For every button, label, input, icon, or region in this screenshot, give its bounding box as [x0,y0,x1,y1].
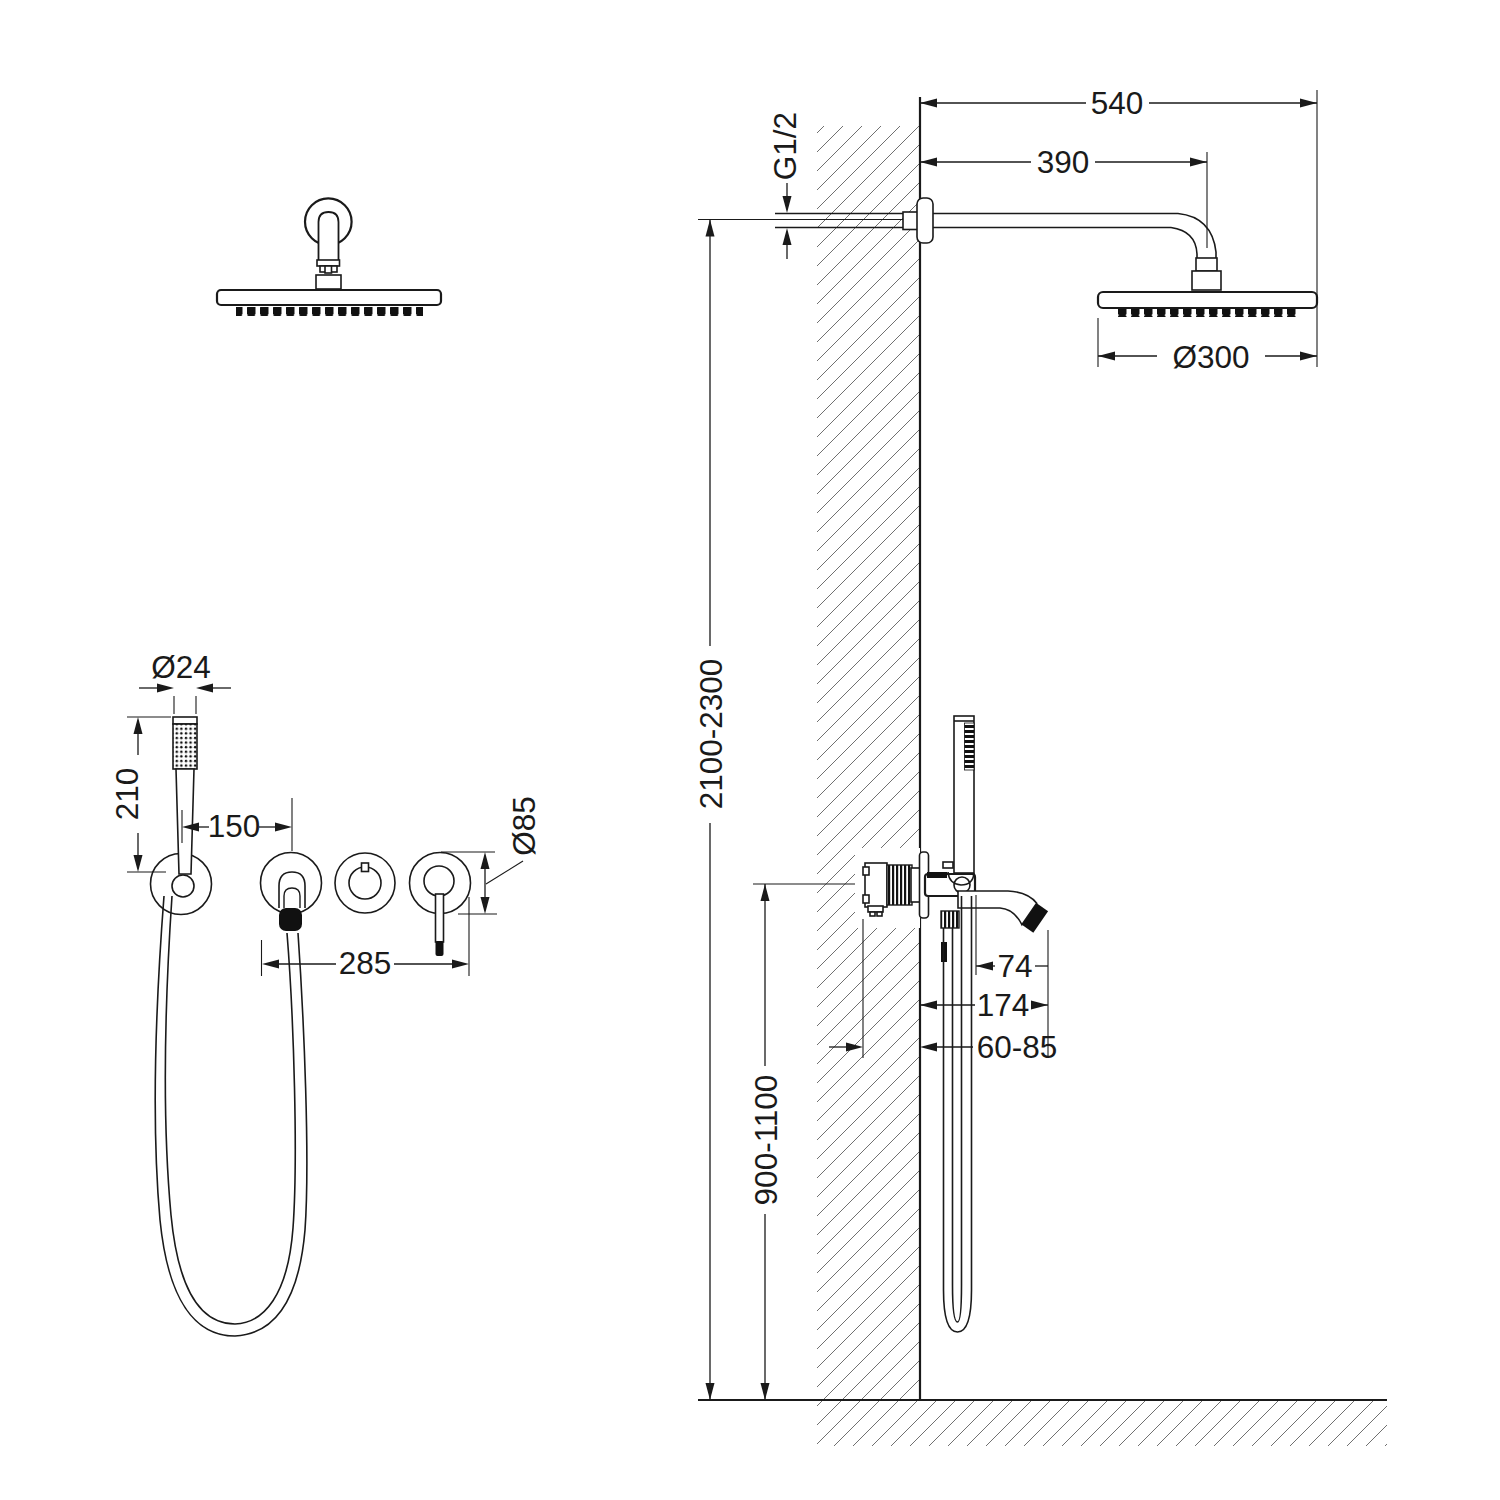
hose-inner-edge-side [953,896,962,1322]
escutcheon-dia-leader [486,861,523,884]
valve-collar [911,868,920,902]
holder-arm-side [927,872,947,878]
valve-foot-2 [877,912,882,916]
floor-hatch [817,1400,1387,1446]
wall-nipple [903,212,918,230]
pipe-nut-front [317,260,340,266]
rain-head-nozzles-side [1116,309,1300,317]
wall-hatch [817,126,920,1400]
front-view-dimensions: Ø24 210 150 285 Ø85 [109,649,542,981]
spout-outer-front [279,872,305,908]
valve-foot-plate [868,906,883,912]
hose-outlet-nut [941,911,959,928]
valve-tab-bottom [863,895,869,903]
valve-thread-section [887,865,912,905]
front-view: Ø24 210 150 285 Ø85 [109,198,542,1336]
valve-tab-top [863,867,869,875]
side-view: 540 390 G1/2 Ø300 2100-2300 900-1100 [693,85,1387,1446]
hand-shower-side [954,716,974,873]
lever-handle-front [436,894,444,942]
technical-drawing-page: 540 390 G1/2 Ø300 2100-2300 900-1100 [0,0,1500,1500]
dim-wall-embed-depth-label: 60-85 [977,1029,1058,1065]
dim-thread-size-label: G1/2 [767,112,803,180]
dim-spout-total-reach-label: 174 [977,987,1030,1023]
hand-shower-spray-band-side [965,723,975,770]
dim-holder-to-spout-label: 150 [208,808,261,844]
dim-mixer-height-label: 900-1100 [748,1075,784,1206]
lever-base-front [424,866,454,896]
hose-outer-edge-front [155,896,307,1336]
mixer-trim-front [261,853,471,957]
dim-arm-total-label: 540 [1091,85,1144,121]
valve-foot-1 [870,912,875,916]
rain-shower-head-front [217,198,441,316]
pipe-key-front [325,266,332,273]
hand-shower-front-group [151,717,212,915]
arm-escutcheon-side [917,198,933,243]
hose-nut-front [172,875,194,897]
dim-hand-shower-length-label: 210 [109,768,145,821]
dim-escutcheon-diameter-label: Ø85 [506,796,542,856]
rain-head-body-front [217,290,441,305]
drop-pipe-front [319,212,339,260]
dim-spout-reach-label: 74 [997,948,1032,984]
hand-shower-hose-front [155,896,307,1336]
spout-tube-side [958,891,1037,925]
arm-elbow-inner [1171,228,1197,259]
arm-nut [1196,258,1217,271]
head-connector-side [1192,271,1221,290]
dim-trim-span-label: 285 [339,945,392,981]
holder-tab-side [943,862,953,868]
hand-shower-hose-side [941,896,972,1332]
rain-shower-head-side [1098,292,1317,317]
hose-outer-edge-side [944,896,972,1332]
hand-shower-spray-face-front [173,724,197,769]
head-connector-front [316,275,341,289]
side-view-dimensions: 540 390 G1/2 Ø300 2100-2300 900-1100 [693,85,1317,1400]
lever-tip-front [436,941,444,956]
shower-arm-side [698,198,1221,290]
dim-arm-projection-label: 390 [1037,144,1090,180]
rain-head-nozzles-front [236,307,423,316]
rain-head-body-side [1098,292,1317,308]
hose-inner-edge-front [165,896,295,1324]
dim-install-height-label: 2100-2300 [693,659,729,810]
hand-shower-handle-front [176,769,194,874]
hand-shower-cap-front [173,717,197,724]
dim-rain-head-diameter-label: Ø300 [1172,339,1249,375]
shower-installation-diagram: 540 390 G1/2 Ø300 2100-2300 900-1100 [0,0,1500,1500]
diverter-indicator [362,863,369,872]
dim-hand-shower-diameter-label: Ø24 [151,649,211,685]
spout-tip-front [279,908,302,931]
